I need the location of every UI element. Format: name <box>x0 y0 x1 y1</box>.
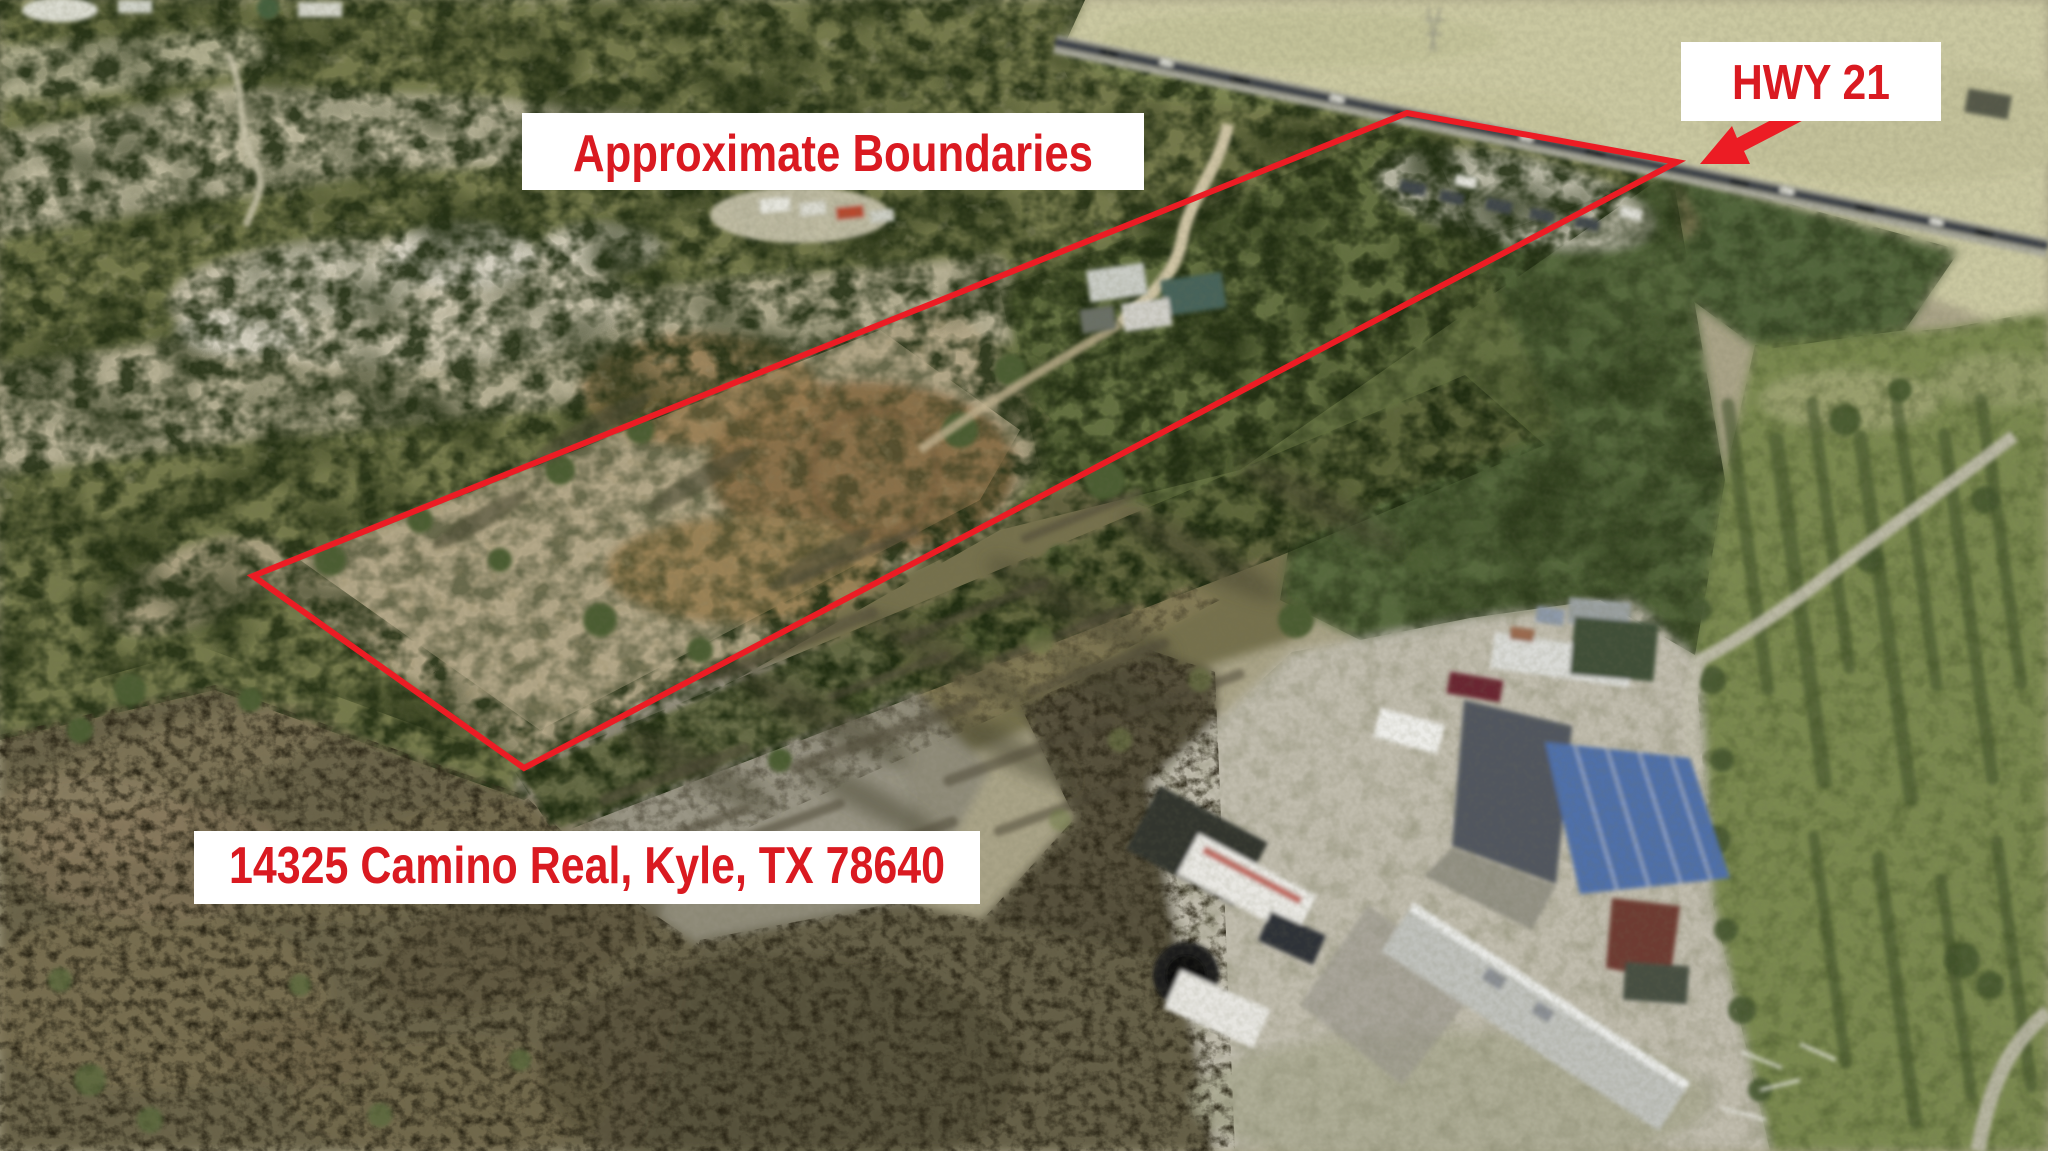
svg-text:Approximate Boundaries: Approximate Boundaries <box>573 125 1093 183</box>
svg-text:14325 Camino Real, Kyle, TX 78: 14325 Camino Real, Kyle, TX 78640 <box>229 837 945 895</box>
svg-text:HWY 21: HWY 21 <box>1732 56 1890 110</box>
